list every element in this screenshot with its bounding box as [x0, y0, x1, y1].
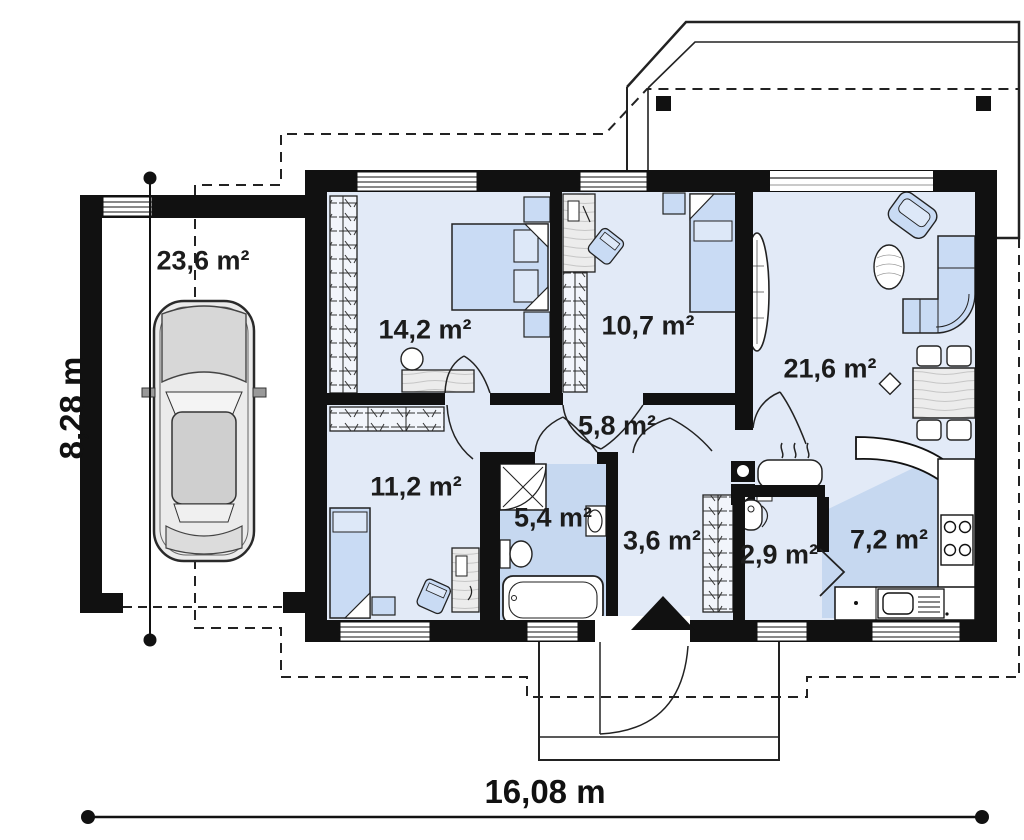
dining-chair — [917, 420, 941, 440]
dining-chair — [947, 346, 971, 366]
room-label-utility: 2,9 m² — [740, 540, 818, 571]
stove — [941, 515, 973, 565]
window — [580, 172, 647, 191]
window — [757, 622, 807, 641]
nightstand — [663, 193, 685, 214]
room-label-bathroom: 5,4 m² — [514, 503, 592, 534]
room-label-garage: 23,6 m² — [156, 246, 249, 277]
room-label-entry: 3,6 m² — [623, 526, 701, 557]
chair — [401, 348, 423, 370]
car-mirror — [142, 388, 155, 397]
kitchen-sink — [878, 589, 949, 618]
room-label-bedroom-1: 14,2 m² — [378, 315, 471, 346]
entry-furniture — [703, 495, 733, 612]
car-mirror — [253, 388, 266, 397]
nightstand — [524, 197, 550, 222]
entry-porch — [539, 642, 779, 760]
car — [142, 301, 266, 561]
window — [357, 172, 477, 191]
window — [527, 622, 578, 641]
garage-window — [103, 197, 152, 216]
nightstand — [524, 312, 550, 337]
terrace-sliding-door — [770, 171, 933, 191]
dimension-width: 16,08 m — [484, 773, 605, 811]
room-label-kitchen: 7,2 m² — [850, 525, 928, 556]
dimension-height: 8,28 m — [53, 357, 91, 460]
room-label-bedroom-3: 11,2 m² — [370, 472, 462, 503]
room-label-living: 21,6 m² — [783, 354, 876, 385]
side-table — [874, 245, 904, 289]
dining-chair — [947, 420, 971, 440]
terrace-post — [976, 96, 991, 111]
toilet — [500, 540, 532, 568]
boiler — [758, 460, 822, 488]
floor-plan-page: 23,6 m² 14,2 m² 10,7 m² 21,6 m² 5,8 m² 1… — [0, 0, 1024, 840]
dining-table — [913, 368, 975, 418]
side-table — [372, 597, 395, 615]
desk — [402, 370, 474, 392]
room-label-hall: 5,8 m² — [578, 411, 656, 442]
floor-plan-drawing — [0, 0, 1024, 840]
window — [340, 622, 430, 641]
window — [872, 622, 960, 641]
room-label-bedroom-2: 10,7 m² — [601, 311, 694, 342]
dining-chair — [917, 346, 941, 366]
bathtub — [503, 576, 603, 624]
terrace-post — [656, 96, 671, 111]
